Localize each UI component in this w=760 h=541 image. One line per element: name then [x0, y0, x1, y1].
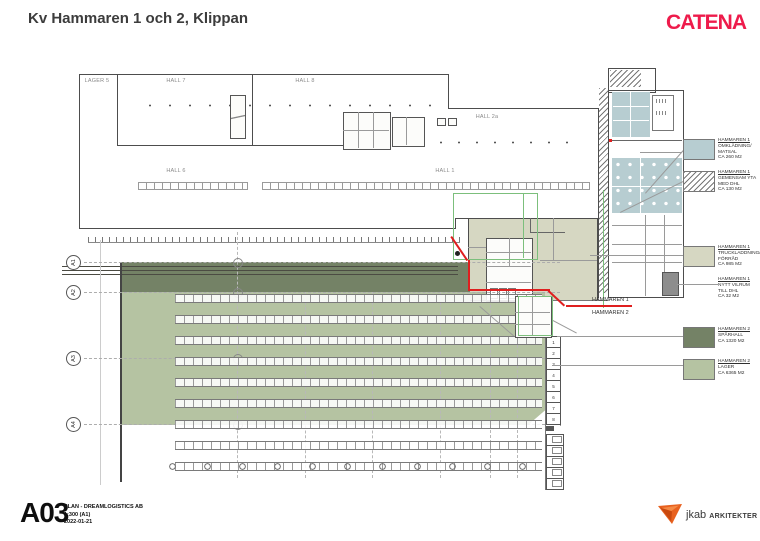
legend-item: HAMMAREN 2 LAGER CA 6365 M2	[718, 359, 760, 376]
wall	[79, 228, 455, 229]
boundary-point	[455, 251, 460, 256]
hall-label-hall7: HALL 7	[160, 78, 192, 84]
racking-row	[175, 441, 542, 450]
room-wall	[612, 262, 682, 263]
room-wall	[540, 260, 597, 261]
dock-marker	[546, 426, 554, 431]
wall	[117, 74, 118, 146]
legend-swatch-sparhall	[683, 327, 715, 348]
jkab-triangle-icon	[658, 504, 682, 525]
vent-grill	[656, 99, 668, 103]
room-wall	[406, 117, 407, 145]
legend-item: HAMMAREN 2 SPÅRHALL CA 1320 M2	[718, 327, 760, 344]
fence-line	[88, 237, 460, 243]
room-wall	[486, 282, 531, 283]
titleblock-text: PLAN - DREAMLOGISTICS AB 1:300 (A1) 2022…	[64, 504, 143, 527]
room-cluster	[392, 117, 425, 147]
dock-bay	[546, 478, 564, 490]
small-room	[448, 118, 457, 126]
room-wall	[640, 152, 682, 153]
racking-row	[175, 420, 542, 429]
titleblock-line1: PLAN - DREAMLOGISTICS AB	[64, 504, 143, 512]
hall-label-hall2a: HALL 2a	[470, 114, 504, 120]
gridline-A1	[84, 262, 560, 263]
room-wall	[664, 215, 665, 272]
omkladning-area-upper	[612, 92, 650, 137]
racking-row	[175, 315, 542, 324]
grid-circle	[233, 258, 243, 268]
grid-bubble-a1: A1	[66, 255, 81, 270]
room-wall	[486, 266, 531, 267]
red-marker	[609, 139, 612, 142]
grid-bubble-a4: A4	[66, 417, 81, 432]
grid-bubble-a2: A2	[66, 285, 81, 300]
titleblock-line2: 1:300 (A1)	[64, 512, 143, 520]
gridline-A2	[84, 292, 560, 293]
wall	[448, 108, 598, 109]
boundary-line	[100, 240, 101, 485]
room-wall	[613, 106, 649, 107]
room-wall	[613, 120, 649, 121]
racking-row	[175, 336, 542, 345]
room-wall	[612, 244, 682, 245]
legend-swatch-truckladdning	[683, 246, 715, 267]
hall-label-hall1: HALL 1	[428, 168, 462, 174]
boundary-red-line	[468, 289, 550, 291]
boundary-label-hammaren2: HAMMAREN 2	[592, 310, 629, 316]
construction-line	[523, 193, 524, 258]
legend-item: HAMMAREN 1 OMKLÄDNING/ MATSAL CA 260 M2	[718, 138, 760, 161]
hall-label-hall8: HALL 8	[289, 78, 321, 84]
construction-extent	[453, 193, 538, 260]
wall	[79, 74, 80, 228]
page-title: Kv Hammaren 1 och 2, Klippan	[28, 10, 248, 27]
boundary-red-line	[468, 260, 470, 291]
racking-row	[175, 294, 542, 303]
legend-leader	[557, 336, 683, 337]
wall	[597, 218, 598, 300]
room-wall	[630, 92, 631, 137]
dock-door: 8	[546, 413, 561, 425]
legend-leader	[552, 365, 683, 366]
legend-item: HAMMAREN 1 NYTT VILRUM TILL DHL CA 32 M2	[718, 277, 760, 300]
racking-row	[175, 357, 542, 366]
drawing-sheet: Kv Hammaren 1 och 2, Klippan CATENA LAGE…	[0, 0, 760, 541]
vent-grill	[656, 111, 668, 115]
titleblock-line3: 2022-01-21	[64, 519, 143, 527]
sheet-number: A03	[20, 497, 68, 529]
skylight-row	[262, 182, 590, 190]
legend-leader	[590, 255, 683, 256]
wall	[252, 74, 253, 146]
legend-leader	[677, 284, 718, 285]
small-room	[437, 118, 446, 126]
room-wall	[612, 225, 682, 226]
racking-row	[175, 378, 542, 387]
skylight-row	[138, 182, 248, 190]
grid-bubble-a3: A3	[66, 351, 81, 366]
boundary-label-hammaren1: HAMMAREN 1	[592, 297, 629, 303]
room-wall	[343, 130, 389, 131]
racking-row	[175, 399, 542, 408]
boundary-red-line	[566, 305, 632, 307]
catena-logo: CATENA	[666, 11, 746, 35]
hall-label-hall6: HALL 6	[160, 168, 192, 174]
stair-core	[230, 95, 246, 139]
column-circles-row	[168, 462, 560, 471]
jkab-wordmark: jkab ARKITEKTER	[686, 509, 757, 521]
legend-item: HAMMAREN 1 TRUCKLADDNING/ FÖRRÅD CA 985 …	[718, 245, 760, 268]
construction-line	[603, 190, 604, 308]
room-cluster	[343, 112, 391, 150]
wall	[448, 74, 449, 108]
gridline-v	[490, 300, 491, 478]
wall	[79, 74, 448, 75]
hatched-wall	[610, 70, 641, 87]
legend-swatch-omkladning	[683, 139, 715, 160]
legend-item: HAMMAREN 1 GEMENSAM YTA MED DHL CA 130 M…	[718, 170, 760, 193]
ramp-line	[553, 320, 577, 334]
legend-swatch-gemensam	[683, 171, 715, 192]
hall-label-lager5: LAGER 5	[79, 78, 115, 84]
room-wall	[553, 218, 554, 260]
column-dots-row	[140, 104, 440, 107]
construction-extent	[518, 296, 553, 336]
warehouse-west-wall	[120, 262, 122, 482]
legend-swatch-lager	[683, 359, 715, 380]
room-wall	[612, 140, 682, 141]
jkab-logo: jkab ARKITEKTER	[658, 504, 757, 525]
